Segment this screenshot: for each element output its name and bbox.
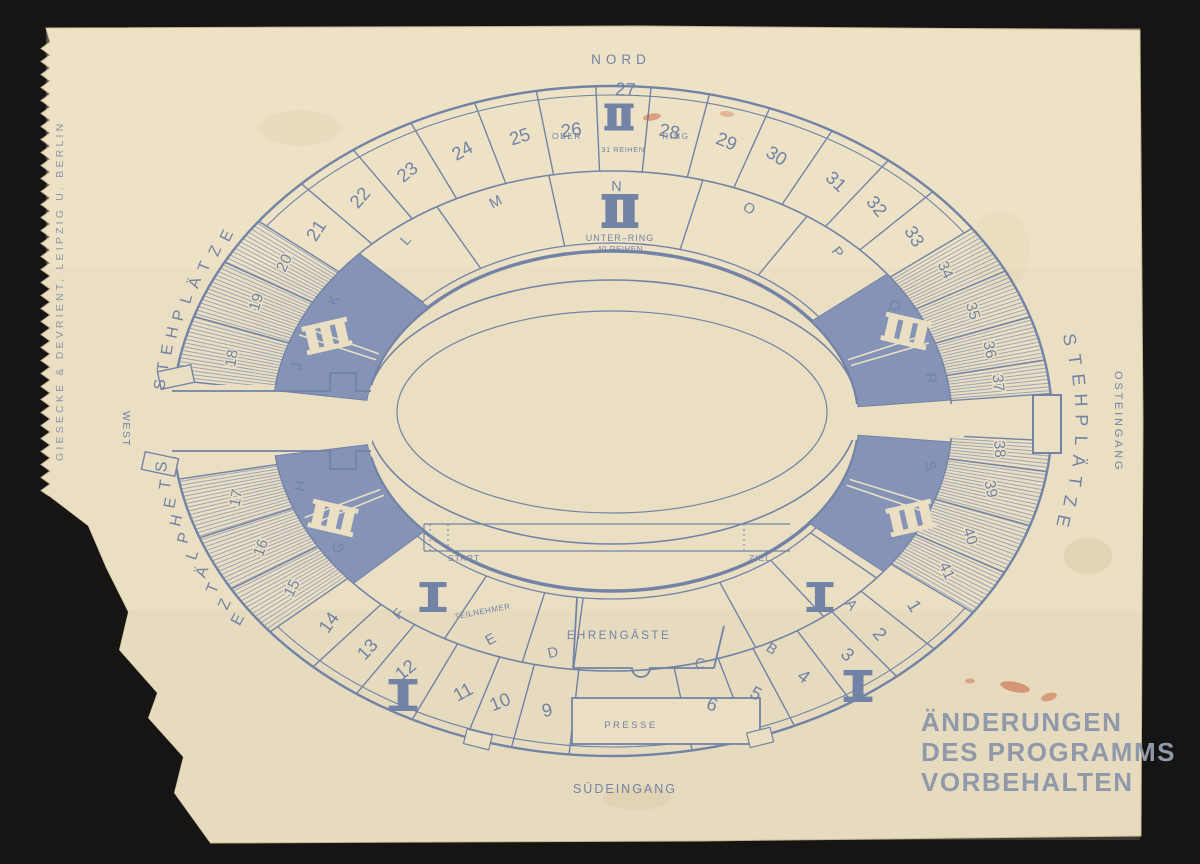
section-number: 17 [226,488,246,508]
west-label: WEST [120,411,132,447]
ober-ring-word-left: OBER [552,131,582,141]
standing-room-letter: S [152,378,170,390]
east-corridor-mid [936,404,964,438]
east-entrance-label: OSTEINGANG [1112,371,1124,472]
honor-guests-label: EHRENGÄSTE [567,630,671,642]
section-number: 37 [988,373,1007,392]
paper-stain [1064,538,1112,574]
south-entrance-label: SÜDEINGANG [573,782,677,796]
section-number: 38 [990,440,1008,458]
notice-line-3: VORBEHALTEN [921,767,1133,797]
ober-ring-word-right: RING [662,131,689,141]
section-number: 36 [979,340,999,360]
standing-room-letter: S [153,461,171,473]
press-box [572,698,760,744]
notice-line-1: ÄNDERUNGEN [921,707,1122,737]
standing-room-letter: E [1068,373,1089,387]
scan-background: START ZIEL PRESSE [0,0,1200,864]
ober-ring-rows: 31 REIHEN [601,145,644,154]
north-label: NORD [591,52,651,67]
section-letter: N [611,179,622,195]
section-number: 18 [222,348,242,368]
ticket-scan: START ZIEL PRESSE [0,0,1200,864]
east-corridor-inner [846,404,868,440]
stamp-mark [965,679,975,684]
press-label: PRESSE [604,720,658,731]
unter-ring-name: UNTER–RING [586,233,655,243]
east-entrance-door [1033,395,1061,453]
unter-ring-rows: 40 REIHEN [597,245,643,254]
section-number: 27 [615,78,636,100]
standing-room-letter: L [1071,435,1091,446]
paper-stain [260,110,340,146]
standing-room-letter: P [1072,414,1092,426]
standing-room-letter: Ä [1068,454,1089,468]
section-letter: R [922,372,939,385]
section-number: 39 [981,479,1001,499]
printer-imprint: GIESECKE & DEVRIENT, LEIPZIG U. BERLIN [54,121,66,461]
standing-room-letter: H [1071,393,1092,407]
notice-line-2: DES PROGRAMMS [921,737,1176,767]
